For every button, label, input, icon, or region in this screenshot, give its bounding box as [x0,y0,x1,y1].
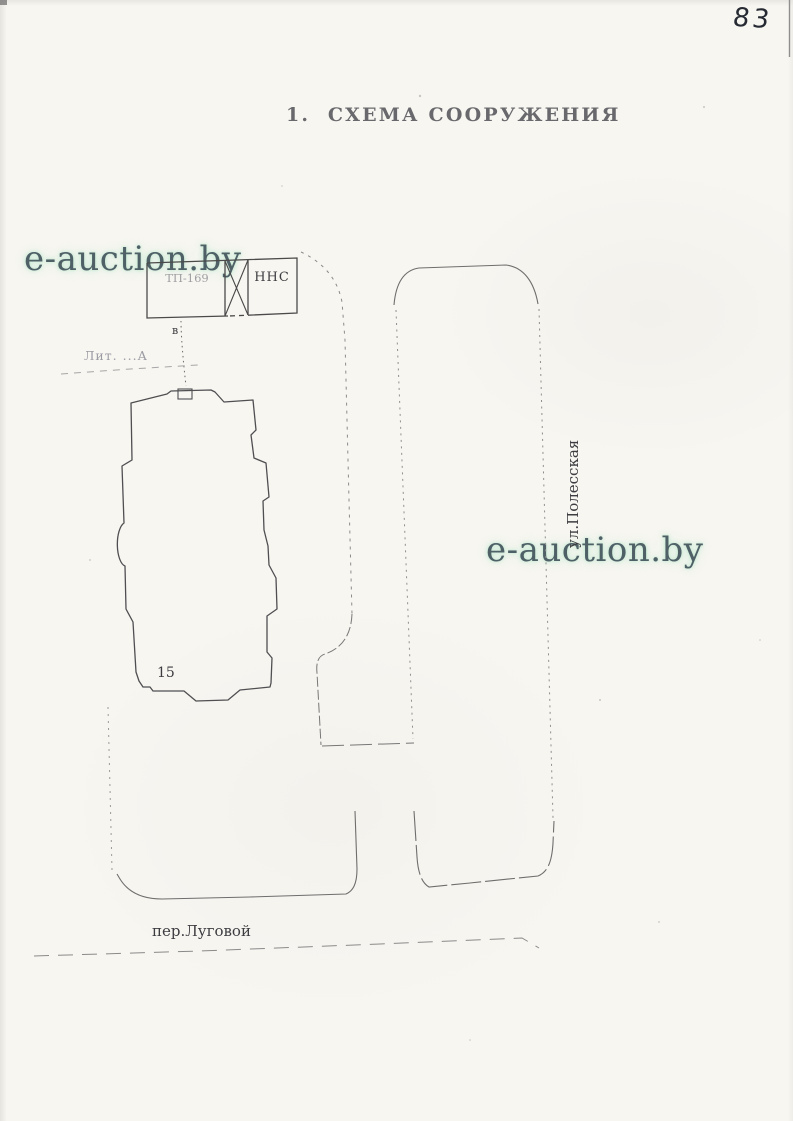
lugovoy-road-edge [34,938,539,956]
building-number: 15 [157,665,175,681]
driveway-connector-line [322,743,414,746]
utility-block-outline [147,258,297,318]
scan-corner-artifact [0,0,7,5]
right-block-left-edge [396,310,413,739]
crossed-cell-x-icon [225,260,248,316]
utility-block-bottom-dashed [228,315,253,316]
tp-box-label: ТП-169 [165,271,209,285]
right-block-top-edge [394,265,538,305]
building-outline [117,390,277,701]
connection-label: в [172,324,178,337]
utility-block [147,258,297,318]
left-block-south-boundary [317,614,352,745]
right-block-right-edge [539,309,553,818]
liter-leader-line [61,365,198,374]
right-block-bottom-edge [414,811,554,887]
left-block-ne-boundary [301,252,352,614]
street-label-polesskaya: ул.Полесская [564,440,582,548]
bottom-left-block-edge [117,811,357,899]
street-label-lugovoy: пер.Луговой [152,922,251,940]
scanned-page: 83 1. СХЕМА СООРУЖЕНИЯ e-auction.by e-au… [0,0,793,1121]
bottom-left-block-west-edge [108,707,112,870]
nns-box-label: ННС [254,270,290,285]
liter-label: Лит. ...А [84,348,148,363]
utility-connection-line [181,321,186,386]
site-plan-svg: ТП-169 ННС в Лит. ...А 15 ул.Полесская п… [0,0,793,1121]
